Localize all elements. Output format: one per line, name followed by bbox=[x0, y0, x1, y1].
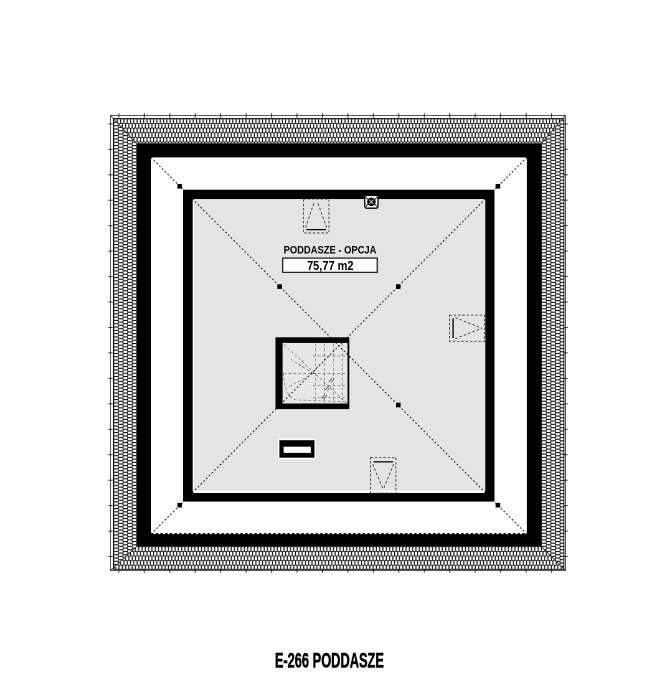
svg-text:PODDASZE - OPCJA: PODDASZE - OPCJA bbox=[284, 245, 377, 257]
svg-text:75,77 m2: 75,77 m2 bbox=[307, 258, 354, 273]
svg-text:E-266 PODDASZE: E-266 PODDASZE bbox=[275, 648, 384, 672]
